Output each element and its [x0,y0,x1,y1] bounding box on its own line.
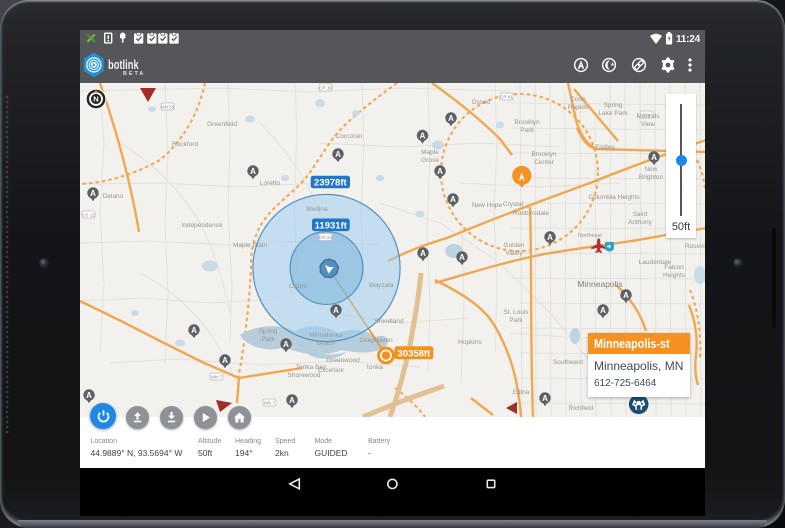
svg-text:Loretto: Loretto [260,180,281,187]
svg-text:Greenfield: Greenfield [207,121,237,128]
svg-text:Golden: Golden [504,242,525,249]
svg-text:Brighton: Brighton [639,174,664,181]
svg-text:Osseo: Osseo [472,99,491,106]
svg-text:Southwest: Southwest [553,359,584,366]
svg-text:Richfield: Richfield [569,405,594,412]
svg-text:Minneapolis: Minneapolis [577,279,622,289]
svg-text:Deephaven: Deephaven [359,337,393,344]
svg-text:Woodland: Woodland [374,318,404,325]
svg-text:23978ft: 23978ft [314,178,348,189]
svg-text:Saint: Saint [633,211,648,218]
svg-text:Shorewood: Shorewood [288,372,321,379]
svg-text:Brooklyn: Brooklyn [531,151,557,158]
svg-text:Heights: Heights [663,272,686,279]
svg-text:N: N [93,95,98,104]
svg-text:Maple Plain: Maple Plain [233,242,267,249]
svg-text:Crystal: Crystal [503,201,524,208]
svg-text:Park: Park [520,127,534,134]
svg-text:MN 7: MN 7 [264,400,275,405]
svg-text:Fridley: Fridley [595,144,615,151]
svg-text:Park: Park [509,317,523,324]
svg-text:CR 30: CR 30 [319,85,332,90]
svg-text:Rockford: Rockford [172,141,198,148]
svg-text:30358ft: 30358ft [398,349,432,360]
svg-text:US 12: US 12 [82,212,95,217]
svg-text:Maple: Maple [421,149,439,156]
svg-text:11931ft: 11931ft [315,220,348,231]
svg-text:Northeast: Northeast [578,233,602,239]
svg-text:Robbinsdale: Robbinsdale [513,210,550,217]
svg-text:Spring: Spring [259,328,278,335]
svg-text:St. Louis: St. Louis [503,309,529,316]
svg-text:View: View [641,121,655,128]
svg-text:Spring: Spring [604,102,623,109]
svg-text:Corcoran: Corcoran [336,133,363,140]
svg-text:Center: Center [534,159,554,166]
svg-text:Beach: Beach [317,340,336,347]
svg-text:MN 7: MN 7 [211,374,222,379]
svg-text:Medina: Medina [306,206,328,213]
svg-text:Independence: Independence [181,222,223,229]
svg-text:Minnetonka: Minnetonka [309,332,343,339]
svg-text:Park: Park [261,336,275,343]
svg-text:Hopkins: Hopkins [458,339,482,346]
svg-text:CR 81: CR 81 [500,94,513,99]
svg-text:Orono: Orono [289,283,307,290]
svg-text:New: New [644,166,657,173]
svg-text:Lake Park: Lake Park [598,110,628,117]
svg-text:Wayzata: Wayzata [368,282,393,289]
svg-text:Greenwood: Greenwood [326,357,360,364]
svg-text:New Hope: New Hope [472,202,503,209]
svg-text:Roseville: Roseville [685,243,705,250]
svg-text:Edina: Edina [513,389,530,396]
svg-text:Anthony: Anthony [628,219,653,226]
svg-text:Coon: Coon [570,96,586,103]
svg-text:CR 24: CR 24 [319,235,332,240]
svg-text:Excelsior: Excelsior [318,367,345,374]
svg-text:Delano: Delano [103,193,124,200]
svg-text:MN 55: MN 55 [161,104,175,109]
svg-text:tonka: tonka [367,364,383,371]
svg-text:Columbia Heights: Columbia Heights [588,194,640,201]
svg-text:Brooklyn: Brooklyn [514,119,540,126]
svg-text:Grove: Grove [421,157,439,164]
svg-text:Falcon: Falcon [664,264,684,271]
svg-text:Mounds: Mounds [636,113,660,120]
svg-text:Rapids: Rapids [568,104,589,111]
svg-text:Valley: Valley [505,250,523,257]
